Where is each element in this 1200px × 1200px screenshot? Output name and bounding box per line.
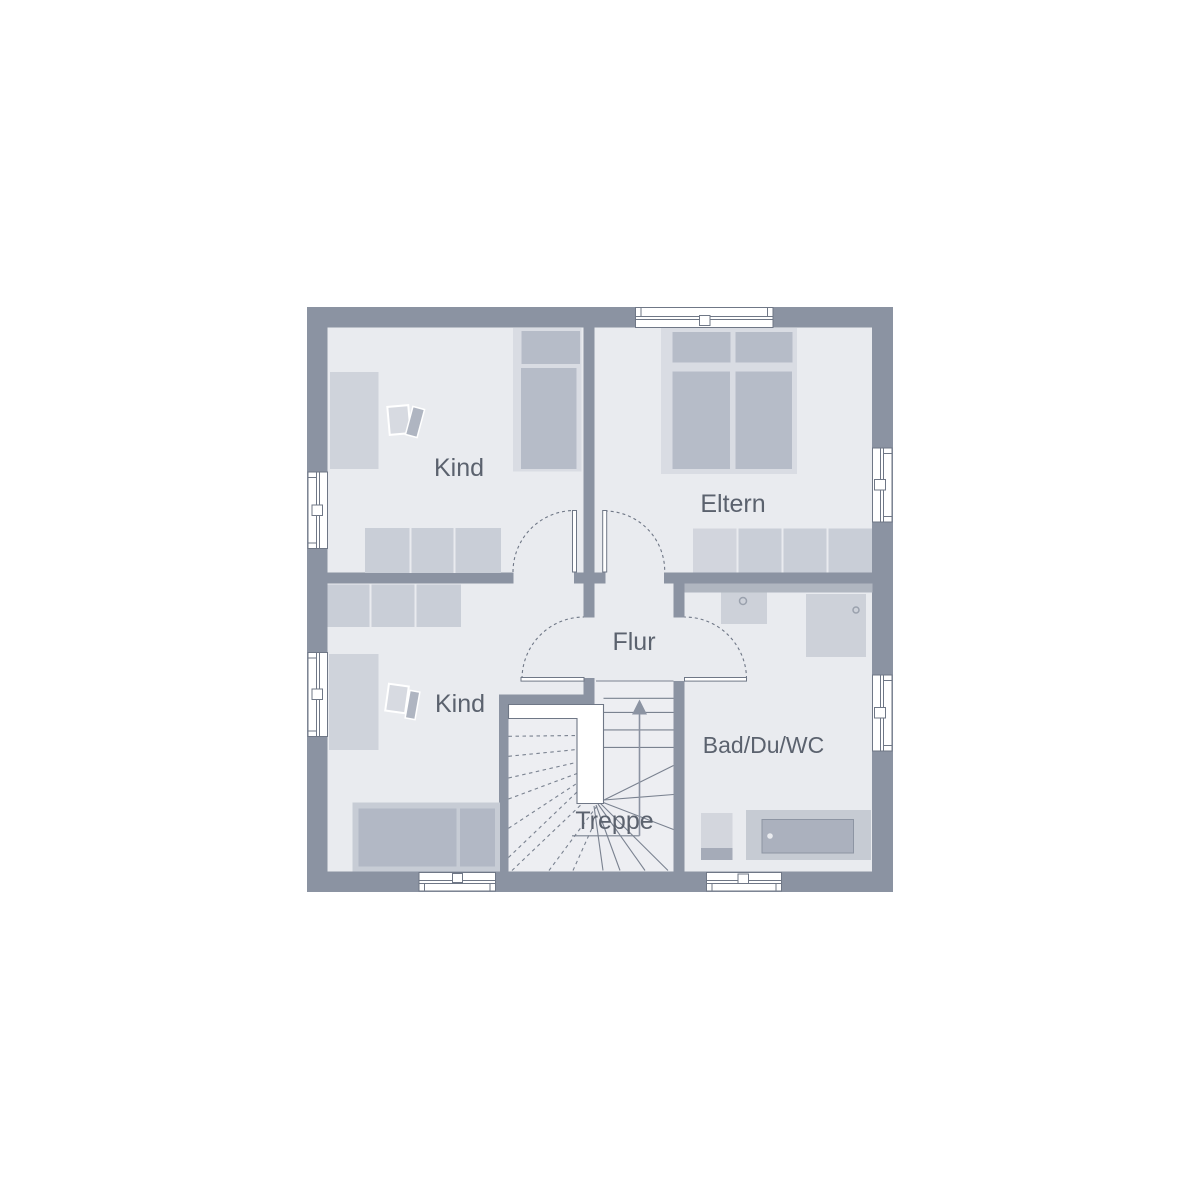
svg-text:Kind: Kind [435, 690, 485, 718]
svg-text:Treppe: Treppe [575, 807, 653, 835]
svg-text:Flur: Flur [612, 628, 655, 656]
svg-text:Kind: Kind [434, 454, 484, 482]
svg-text:Bad/Du/WC: Bad/Du/WC [703, 732, 824, 758]
svg-text:Eltern: Eltern [700, 490, 765, 518]
